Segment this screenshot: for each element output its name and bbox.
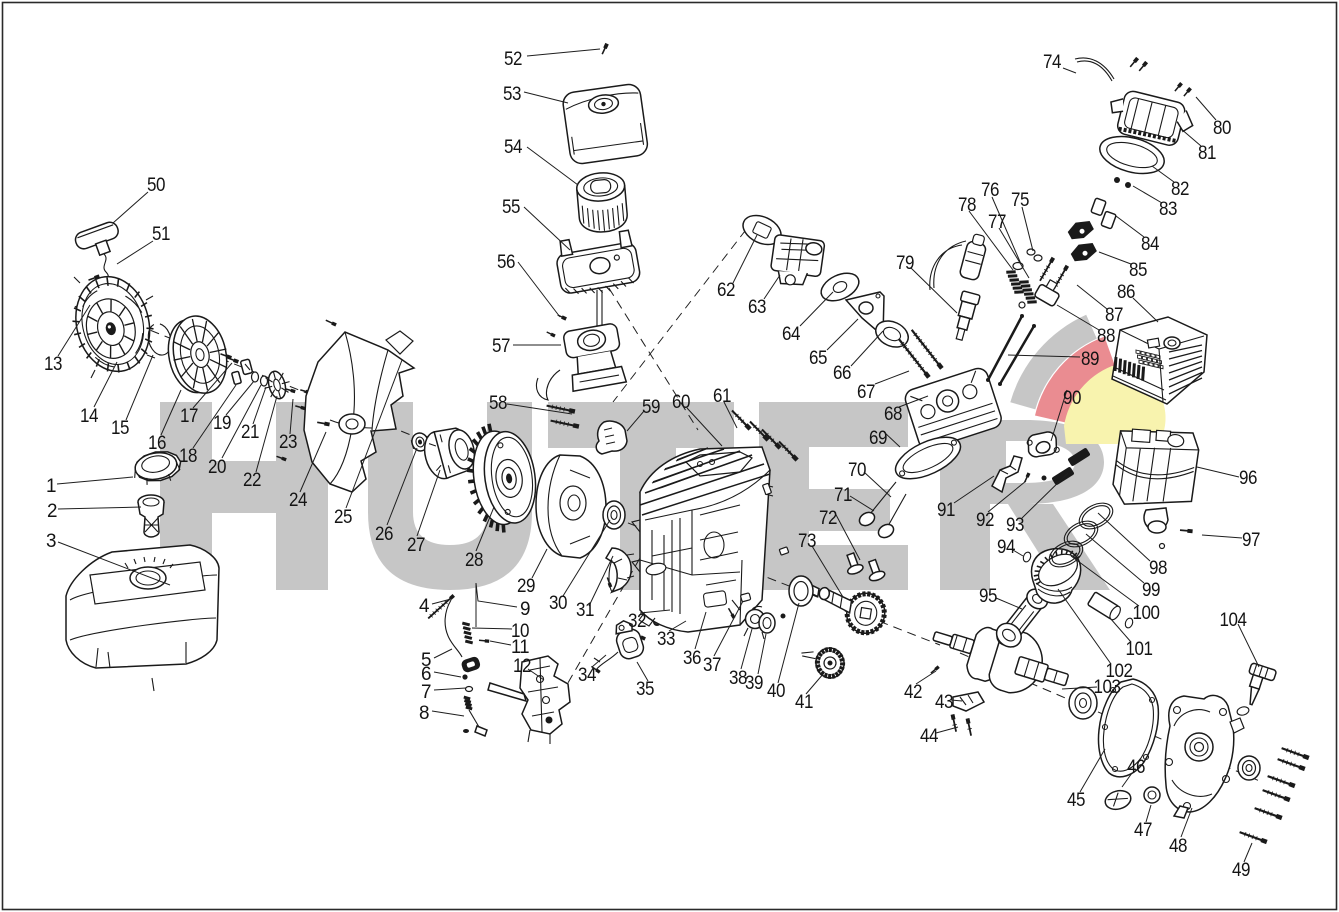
svg-text:77: 77 [988, 212, 1006, 233]
svg-text:35: 35 [636, 679, 654, 700]
svg-text:81: 81 [1198, 143, 1216, 164]
svg-text:71: 71 [834, 485, 852, 506]
svg-text:23: 23 [279, 432, 297, 453]
svg-text:24: 24 [289, 490, 308, 511]
svg-text:53: 53 [503, 84, 521, 105]
svg-text:59: 59 [642, 397, 660, 418]
svg-text:18: 18 [179, 446, 197, 467]
svg-text:91: 91 [937, 500, 955, 521]
svg-text:83: 83 [1159, 199, 1177, 220]
svg-text:29: 29 [517, 576, 535, 597]
svg-text:54: 54 [504, 137, 523, 158]
svg-text:76: 76 [981, 180, 999, 201]
svg-text:104: 104 [1220, 610, 1248, 631]
svg-text:74: 74 [1043, 52, 1062, 73]
svg-text:45: 45 [1067, 790, 1085, 811]
svg-text:33: 33 [657, 629, 675, 650]
svg-text:85: 85 [1129, 260, 1147, 281]
svg-text:89: 89 [1081, 349, 1099, 370]
svg-text:31: 31 [576, 600, 594, 621]
svg-text:60: 60 [672, 392, 690, 413]
svg-text:65: 65 [809, 348, 827, 369]
svg-text:82: 82 [1171, 179, 1189, 200]
svg-text:37: 37 [703, 655, 721, 676]
svg-text:42: 42 [904, 682, 922, 703]
svg-text:63: 63 [748, 297, 766, 318]
svg-text:9: 9 [520, 599, 530, 620]
svg-text:79: 79 [896, 253, 914, 274]
svg-text:21: 21 [241, 422, 259, 443]
svg-text:41: 41 [795, 692, 813, 713]
svg-text:8: 8 [419, 703, 429, 724]
svg-text:97: 97 [1242, 530, 1260, 551]
svg-text:88: 88 [1097, 326, 1115, 347]
svg-text:55: 55 [502, 197, 520, 218]
svg-text:34: 34 [578, 665, 597, 686]
svg-text:3: 3 [46, 531, 56, 552]
svg-text:73: 73 [798, 531, 816, 552]
svg-text:70: 70 [848, 460, 866, 481]
svg-text:86: 86 [1117, 282, 1135, 303]
svg-text:66: 66 [833, 363, 851, 384]
svg-text:99: 99 [1142, 580, 1160, 601]
svg-text:57: 57 [492, 336, 510, 357]
svg-text:68: 68 [884, 404, 902, 425]
svg-text:84: 84 [1141, 234, 1160, 255]
svg-text:58: 58 [489, 393, 507, 414]
svg-text:32: 32 [628, 611, 646, 632]
svg-text:101: 101 [1126, 639, 1153, 660]
svg-text:56: 56 [497, 252, 515, 273]
svg-text:75: 75 [1011, 190, 1029, 211]
svg-text:100: 100 [1133, 603, 1160, 624]
svg-text:27: 27 [407, 535, 425, 556]
svg-text:16: 16 [148, 433, 166, 454]
svg-text:12: 12 [513, 656, 531, 677]
svg-text:44: 44 [920, 726, 939, 747]
svg-text:28: 28 [465, 550, 483, 571]
svg-text:47: 47 [1134, 820, 1152, 841]
svg-text:22: 22 [243, 470, 261, 491]
svg-text:43: 43 [935, 692, 953, 713]
svg-text:2: 2 [47, 501, 57, 522]
svg-text:96: 96 [1239, 468, 1257, 489]
svg-text:4: 4 [419, 596, 430, 617]
svg-text:1: 1 [46, 476, 56, 497]
svg-text:26: 26 [375, 524, 393, 545]
svg-text:30: 30 [549, 593, 567, 614]
svg-text:46: 46 [1127, 757, 1145, 778]
svg-text:50: 50 [147, 175, 165, 196]
svg-text:93: 93 [1006, 515, 1024, 536]
svg-text:15: 15 [111, 418, 129, 439]
svg-text:72: 72 [819, 508, 837, 529]
svg-text:103: 103 [1094, 677, 1121, 698]
svg-text:92: 92 [976, 510, 994, 531]
svg-text:69: 69 [869, 428, 887, 449]
svg-text:19: 19 [213, 413, 231, 434]
svg-text:20: 20 [208, 457, 226, 478]
svg-text:36: 36 [683, 648, 701, 669]
svg-text:94: 94 [997, 537, 1016, 558]
svg-text:40: 40 [767, 681, 785, 702]
svg-text:48: 48 [1169, 836, 1187, 857]
svg-text:78: 78 [958, 195, 976, 216]
svg-text:52: 52 [504, 49, 522, 70]
svg-text:87: 87 [1105, 305, 1123, 326]
svg-text:67: 67 [857, 382, 875, 403]
svg-text:13: 13 [44, 354, 62, 375]
svg-text:17: 17 [180, 406, 198, 427]
svg-text:62: 62 [717, 280, 735, 301]
svg-text:14: 14 [80, 406, 99, 427]
svg-text:90: 90 [1063, 388, 1081, 409]
svg-text:7: 7 [421, 682, 431, 703]
svg-text:11: 11 [511, 637, 529, 658]
svg-text:64: 64 [782, 324, 801, 345]
svg-text:61: 61 [713, 386, 731, 407]
svg-text:49: 49 [1232, 860, 1250, 881]
svg-text:95: 95 [979, 586, 997, 607]
svg-text:25: 25 [334, 507, 352, 528]
svg-text:51: 51 [152, 224, 170, 245]
svg-text:80: 80 [1213, 118, 1231, 139]
svg-text:98: 98 [1149, 558, 1167, 579]
svg-text:39: 39 [745, 673, 763, 694]
